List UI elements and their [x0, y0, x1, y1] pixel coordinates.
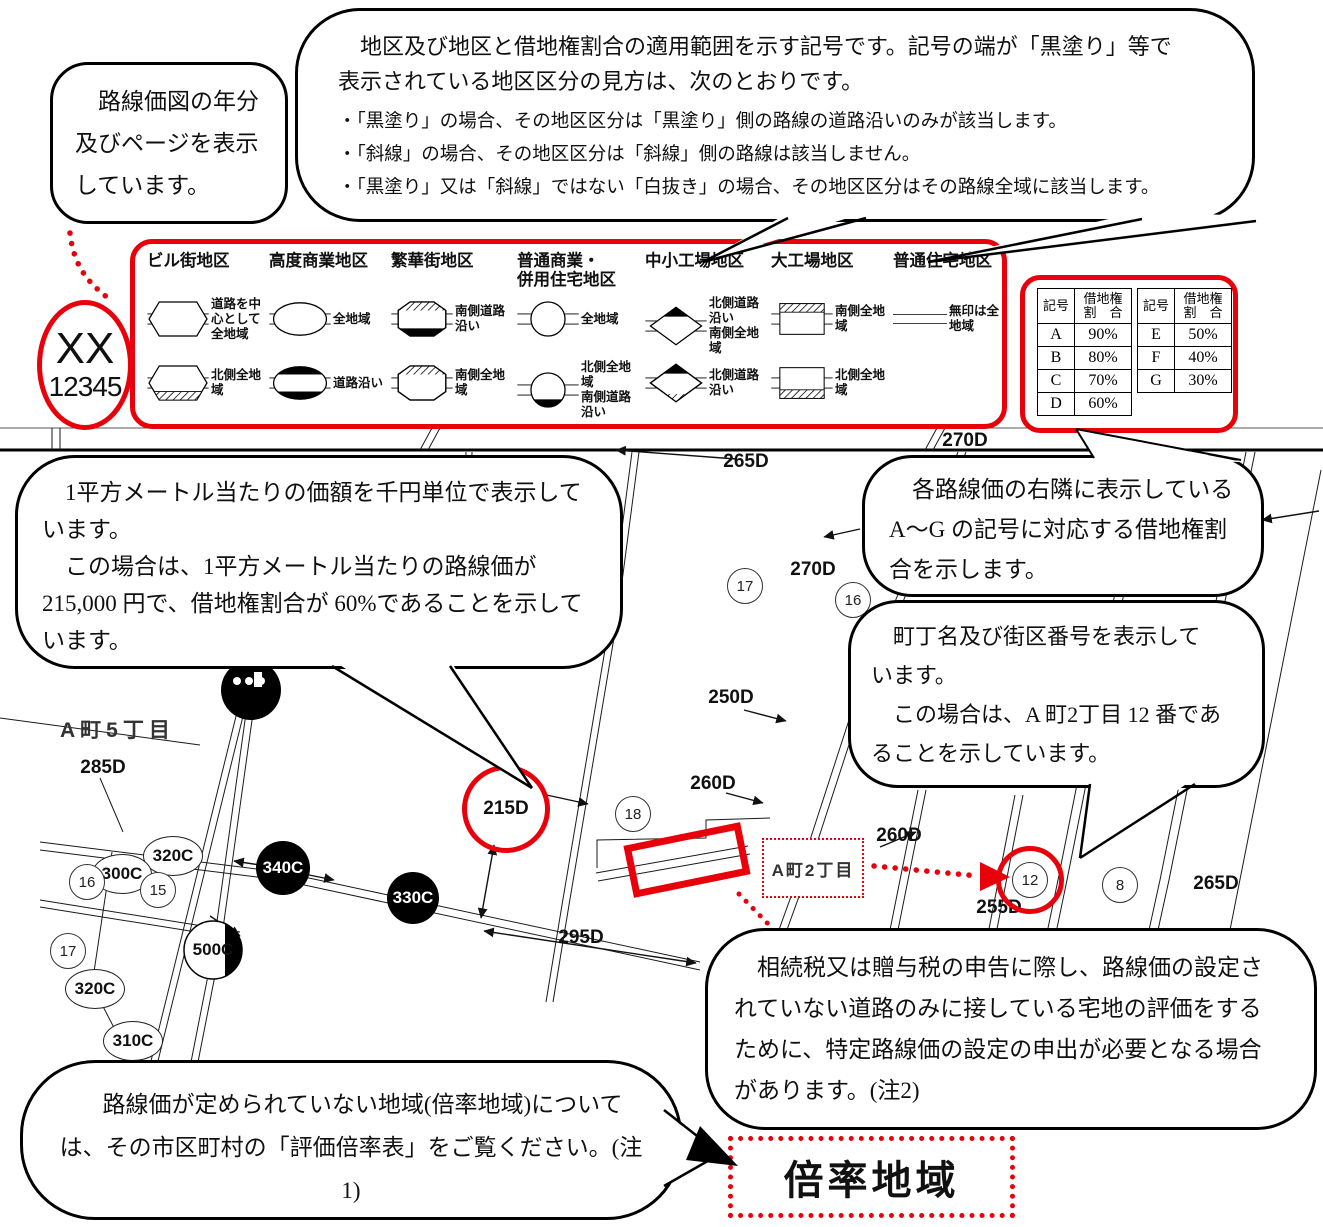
block-number: 12	[1012, 862, 1048, 898]
callout-block-number-text: 町丁名及び街区番号を表示して います。 この場合は、A 町2丁目 12 番であ …	[871, 617, 1242, 773]
district-rule-hatched: ・「斜線」の場合、その地区区分は「斜線」側の路線は該当しません。	[338, 139, 1212, 172]
callout-year-page-text: 路線価図の年分 及びページを表示 しています。	[75, 81, 263, 207]
callout-leasehold-ratio-text: 各路線価の右隣に表示している A〜G の記号に対応する借地権割 合を示します。	[889, 470, 1237, 590]
table-row: C70%	[1038, 370, 1132, 393]
callout-multiplier-area-text: 路線価が定められていない地域(倍率地域)について は、その市区町村の「評価倍率表…	[53, 1083, 649, 1212]
legend-district-small-factory: 中小工場地区 北側道路沿い 南側全地域 北側道路沿い	[645, 252, 771, 420]
dotted-connector-year-stamp	[70, 233, 112, 301]
road-value-label: 250D	[696, 687, 766, 709]
symbol-ellipse-black-top-bottom	[269, 360, 331, 406]
legend-district-high-commercial: 高度商業地区 全地域 道路沿い	[269, 252, 391, 420]
symbol-circle-white	[517, 296, 579, 342]
road-value-label: 260D	[678, 773, 748, 795]
block-number: 17	[727, 568, 763, 604]
road-value-label: 270D	[778, 559, 848, 581]
block-number: 17	[50, 933, 86, 969]
block-number: 16	[69, 864, 105, 900]
road-value-label: 215D	[483, 798, 528, 820]
table-row: E50%	[1138, 324, 1232, 347]
callout-leasehold-ratio: 各路線価の右隣に表示している A〜G の記号に対応する借地権割 合を示します。	[862, 455, 1264, 597]
price-circle: 320C	[143, 836, 203, 876]
road-value-label: 260D	[864, 825, 934, 847]
symbol-diamond-black-top-hatched-bottom	[645, 360, 707, 406]
price-circle-filled: 340C	[256, 841, 310, 895]
year-page-stamp: XX 12345	[37, 300, 133, 430]
district-rule-open: ・「黒塗り」又は「斜線」ではない「白抜き」の場合、その地区区分はその路線全域に該…	[338, 172, 1212, 205]
ratio-table-e-g: 記号借地権 割 合 E50% F40% G30%	[1137, 288, 1232, 393]
symbol-hexagon-hatched-bottom	[147, 360, 209, 406]
symbol-hexagon-white	[147, 296, 209, 342]
symbol-plain-line	[893, 296, 947, 342]
road-value-label: 265D	[711, 451, 781, 473]
legend-district-building: ビル街地区 道路を中心として全地域 北側全地域	[147, 252, 269, 420]
price-circle: 320C	[65, 969, 125, 1009]
highlight-rect-unpriced-road	[628, 826, 747, 893]
area-label-a2: A町2丁目	[772, 856, 855, 881]
symbol-octagon-hatched-top	[391, 360, 453, 406]
price-circle-filled: 330C	[387, 872, 439, 924]
bubble-tail	[1080, 778, 1195, 858]
area-label-a2-box: A町2丁目	[762, 838, 864, 898]
multiplier-area-label: 倍率地域	[784, 1148, 960, 1206]
symbol-rect-hatched-bottom	[771, 360, 833, 406]
road-value-label: 295D	[546, 927, 616, 949]
highlighted-block-circle: 12	[996, 846, 1064, 914]
symbol-diamond-black-top	[645, 303, 707, 349]
callout-price-per-sqm: 1平方メートル当たりの価額を千円単位で表示して います。 この場合は、1平方メー…	[15, 455, 623, 669]
highlighted-price-circle: 215D	[462, 765, 550, 853]
callout-multiplier-area: 路線価が定められていない地域(倍率地域)について は、その市区町村の「評価倍率表…	[20, 1060, 682, 1220]
table-row: D60%	[1038, 393, 1132, 416]
callout-block-number: 町丁名及び街区番号を表示して います。 この場合は、A 町2丁目 12 番であ …	[848, 600, 1265, 788]
callout-specific-route-price: 相続税又は贈与税の申告に際し、路線価の設定さ れていない道路のみに接している宅地…	[705, 928, 1317, 1130]
legend-district-large-factory: 大工場地区 南側全地域 北側全地域	[771, 252, 891, 420]
hidden-price-circle	[221, 660, 281, 720]
callout-year-page: 路線価図の年分 及びページを表示 しています。	[50, 62, 288, 224]
legend-district-residential: 普通住宅地区 無印は全地域	[893, 252, 1001, 420]
map-page-number: 12345	[49, 371, 122, 403]
price-circle-half-filled: 500C	[184, 921, 242, 979]
symbol-circle-black-bottom	[517, 367, 579, 413]
callout-price-per-sqm-text: 1平方メートル当たりの価額を千円単位で表示して います。 この場合は、1平方メー…	[42, 474, 596, 659]
table-row: F40%	[1138, 347, 1232, 370]
legend-district-busy-street: 繁華街地区 南側道路沿い 南側全地域	[391, 252, 517, 420]
area-label-a5: A町5丁目	[60, 714, 175, 744]
district-rule-black: ・「黒塗り」の場合、その地区区分は「黒塗り」側の路線の道路沿いのみが該当します。	[338, 106, 1212, 139]
table-row: B80%	[1038, 347, 1132, 370]
road-value-label: 265D	[1181, 873, 1251, 895]
rosenka-map-guide: 270D 265D 270D 250D 260D 260D 255D 265D …	[0, 0, 1323, 1227]
dotted-connector-specific-price	[739, 894, 772, 928]
legend-district-normal-commercial: 普通商業・ 併用住宅地区 全地域 北側全地域 南側道路沿い	[517, 252, 645, 420]
block-number: 8	[1102, 867, 1138, 903]
map-year: XX	[56, 327, 115, 371]
district-legend: ビル街地区 道路を中心として全地域 北側全地域 高度商業地区	[130, 239, 1007, 429]
symbol-ellipse-white	[269, 296, 331, 342]
symbol-rect-hatched-top	[771, 296, 833, 342]
block-number: 18	[615, 796, 651, 832]
road-value-label: 285D	[68, 757, 138, 779]
block-number: 15	[140, 872, 176, 908]
ratio-table-a-d: 記号借地権 割 合 A90% B80% C70% D60%	[1037, 288, 1132, 416]
symbol-octagon-hatched-top-black-bottom	[391, 296, 453, 342]
callout-specific-route-price-text: 相続税又は贈与税の申告に際し、路線価の設定さ れていない道路のみに接している宅地…	[734, 947, 1288, 1111]
callout-district-symbols-intro: 地区及び地区と借地権割合の適用範囲を示す記号です。記号の端が「黒塗り」等で 表示…	[338, 29, 1212, 99]
callout-district-symbols: 地区及び地区と借地権割合の適用範囲を示す記号です。記号の端が「黒塗り」等で 表示…	[295, 8, 1255, 222]
dotted-arrow-block12	[874, 862, 1010, 891]
table-row: G30%	[1138, 370, 1232, 393]
table-row: A90%	[1038, 324, 1132, 347]
multiplier-area-box: 倍率地域	[728, 1136, 1015, 1218]
price-circle: 310C	[103, 1021, 163, 1061]
road-value-label: 270D	[930, 430, 1000, 452]
leasehold-ratio-tables: 記号借地権 割 合 A90% B80% C70% D60% 記号借地権 割 合 …	[1020, 275, 1238, 433]
